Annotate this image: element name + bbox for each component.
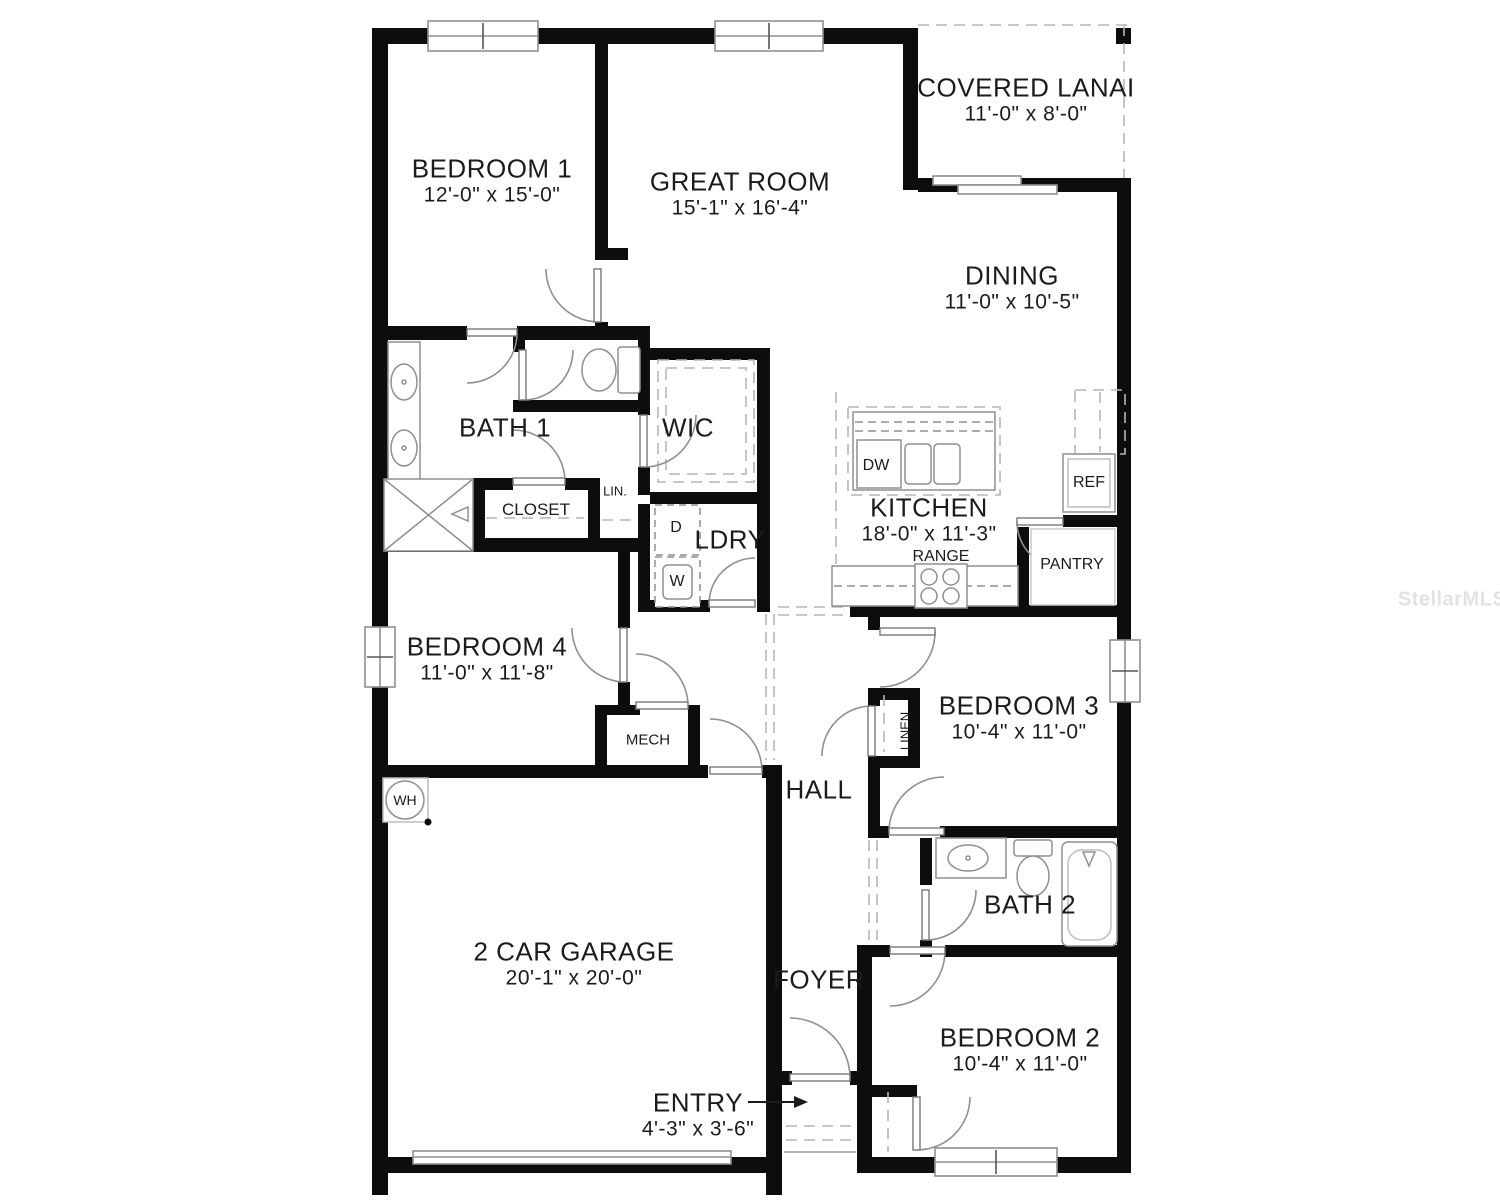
- wall-pantry-left: [1017, 527, 1029, 617]
- wall-bath1-top: [372, 326, 467, 340]
- label-linen: LINEN: [898, 712, 913, 750]
- entry-arrow-head: [794, 1096, 808, 1108]
- bath1-toilet-tank-icon: [618, 347, 640, 393]
- wall-linen-bottom: [868, 756, 920, 768]
- range-burner-3-icon: [921, 588, 937, 604]
- label-refrigerator: REF: [1073, 474, 1105, 492]
- door-arc-water-closet: [523, 350, 573, 400]
- door-arc-closet2: [917, 1097, 970, 1150]
- wall-mech-top: [595, 705, 640, 715]
- door-leaf-bedroom3-a: [880, 628, 935, 635]
- wall-wc-top: [517, 326, 650, 340]
- label-dishwasher: DW: [863, 457, 890, 475]
- room-label-bedroom-3: BEDROOM 3 10'-4" x 11'-0": [939, 692, 1100, 745]
- room-label-entry: ENTRY 4'-3" x 3'-6": [642, 1089, 754, 1142]
- room-label-great-room: GREAT ROOM 15'-1" x 16'-4": [650, 168, 830, 221]
- room-label-hall: HALL: [785, 775, 852, 804]
- floorplan-page: { "plan": { "title": "Single story 4-bed…: [0, 0, 1500, 1200]
- door-arc-mech: [636, 654, 688, 706]
- door-leaf-mech: [636, 702, 688, 709]
- door-leaf-bedroom2: [890, 947, 945, 954]
- range-burner-4-icon: [943, 588, 959, 604]
- wall-right-lower: [1117, 700, 1131, 1173]
- wall-closet-top-b: [565, 478, 590, 490]
- door-leaf-pantry: [1017, 518, 1063, 525]
- kitchen-sink-basin-2-icon: [934, 444, 960, 484]
- kitchen-sink-basin-1-icon: [905, 444, 931, 484]
- door-leaf-wic: [640, 415, 647, 467]
- wall-mech-right: [688, 705, 700, 765]
- door-arc-bath1: [467, 333, 517, 383]
- wall-bedroom4-east-a: [618, 552, 630, 628]
- door-arc-bath2: [926, 890, 976, 940]
- wall-bedroom1-east: [595, 28, 608, 252]
- label-closet: CLOSET: [502, 500, 570, 520]
- door-leaf-bath2: [922, 890, 929, 940]
- room-label-dining: DINING 11'-0" x 10'-5": [944, 262, 1079, 315]
- wall-hall-east-b: [868, 756, 880, 838]
- wall-garage-top-c: [762, 765, 782, 778]
- wall-ldry-left: [638, 504, 650, 612]
- wall-spine: [757, 348, 770, 612]
- wall-bedroom4-east-b: [618, 682, 630, 705]
- door-leaf-bedroom3-b: [889, 828, 944, 835]
- sliding-door-panel-a: [933, 176, 1021, 185]
- door-arc-bedroom4: [572, 628, 626, 682]
- door-leaf-closet2: [913, 1097, 920, 1150]
- wall-bedroom3-south: [940, 826, 1131, 838]
- wall-wic-bottom: [650, 492, 757, 504]
- label-dryer: D: [670, 519, 682, 537]
- wall-closet2-stub: [905, 1085, 917, 1097]
- wall-bedroom1-stub-h: [595, 248, 628, 260]
- label-mech: MECH: [626, 732, 670, 749]
- wall-wc-bottom: [513, 400, 650, 412]
- bath1-sink-1-drain: [402, 380, 406, 384]
- room-label-bedroom-1: BEDROOM 1 12'-0" x 15'-0": [412, 155, 573, 208]
- door-arc-bedroom2: [890, 951, 945, 1006]
- room-label-ldry: LDRY: [695, 525, 766, 554]
- wall-garage-top-a: [372, 765, 607, 778]
- wall-garage-top-b: [607, 765, 708, 778]
- door-arc-front-door: [790, 1018, 850, 1078]
- label-range: RANGE: [913, 548, 970, 566]
- wall-pantry-top: [1063, 515, 1131, 527]
- door-leaf-bedroom1: [594, 269, 601, 322]
- door-leaf-garage-entry: [710, 767, 762, 774]
- door-arc-laundry: [709, 558, 755, 604]
- door-leaf-linen: [868, 706, 875, 756]
- range-burner-2-icon: [943, 569, 959, 585]
- wall-hall-east-stub: [868, 617, 880, 630]
- room-label-bath-1: BATH 1: [459, 413, 551, 442]
- door-leaf-closet: [513, 478, 565, 485]
- stellar-mls-watermark: StellarMLS: [1398, 589, 1500, 612]
- door-arc-bedroom3-a: [880, 632, 935, 687]
- bath1-sink-2-drain: [402, 446, 406, 450]
- door-arc-bedroom3-b: [889, 777, 944, 832]
- room-label-2-car-garage: 2 CAR GARAGE 20'-1" x 20'-0": [473, 938, 674, 991]
- wall-left-lower: [372, 687, 388, 1195]
- sliding-door-panel-b: [958, 185, 1057, 194]
- wall-bedroom3-south-stub: [880, 826, 889, 838]
- room-label-foyer: FOYER: [773, 965, 865, 994]
- bath1-toilet-bowl-icon: [582, 349, 616, 391]
- wall-kitchen-south: [850, 605, 1131, 617]
- wall-lanai-west: [903, 28, 918, 190]
- door-leaf-bedroom4: [620, 628, 627, 682]
- water-heater-valve-dot: [425, 819, 432, 826]
- wall-wic-top: [650, 348, 757, 360]
- room-label-bedroom-2: BEDROOM 2 10'-4" x 11'-0": [940, 1024, 1101, 1077]
- door-leaf-laundry: [709, 600, 755, 607]
- room-label-covered-lanai: COVERED LANAI 11'-0" x 8'-0": [917, 74, 1134, 127]
- bath2-toilet-tank-icon: [1014, 840, 1052, 856]
- wall-bath2-left-a: [920, 838, 932, 885]
- door-arc-garage-entry: [710, 719, 762, 771]
- room-label-bedroom-4: BEDROOM 4 11'-0" x 11'-8": [407, 633, 568, 686]
- wall-wic-west-b: [638, 467, 650, 495]
- label-washer: W: [669, 573, 684, 591]
- door-arc-bedroom1: [546, 269, 599, 322]
- room-label-bath-2: BATH 2: [984, 890, 1076, 919]
- room-label-wic: WIC: [662, 413, 714, 442]
- door-leaf-bath1: [467, 329, 517, 336]
- bath2-sink-drain: [966, 856, 970, 860]
- label-water-heater: WH: [393, 792, 416, 808]
- door-leaf-front-door: [790, 1074, 850, 1081]
- label-lin: LIN.: [603, 484, 627, 499]
- door-leaf-water-closet: [519, 350, 526, 400]
- range-burner-1-icon: [921, 569, 937, 585]
- label-pantry: PANTRY: [1040, 556, 1103, 574]
- wall-right-upper: [1117, 178, 1131, 642]
- door-arc-linen: [822, 706, 872, 756]
- wall-bath2-bottom-b: [945, 945, 1131, 957]
- room-label-kitchen: KITCHEN 18'-0" x 11'-3": [861, 494, 996, 547]
